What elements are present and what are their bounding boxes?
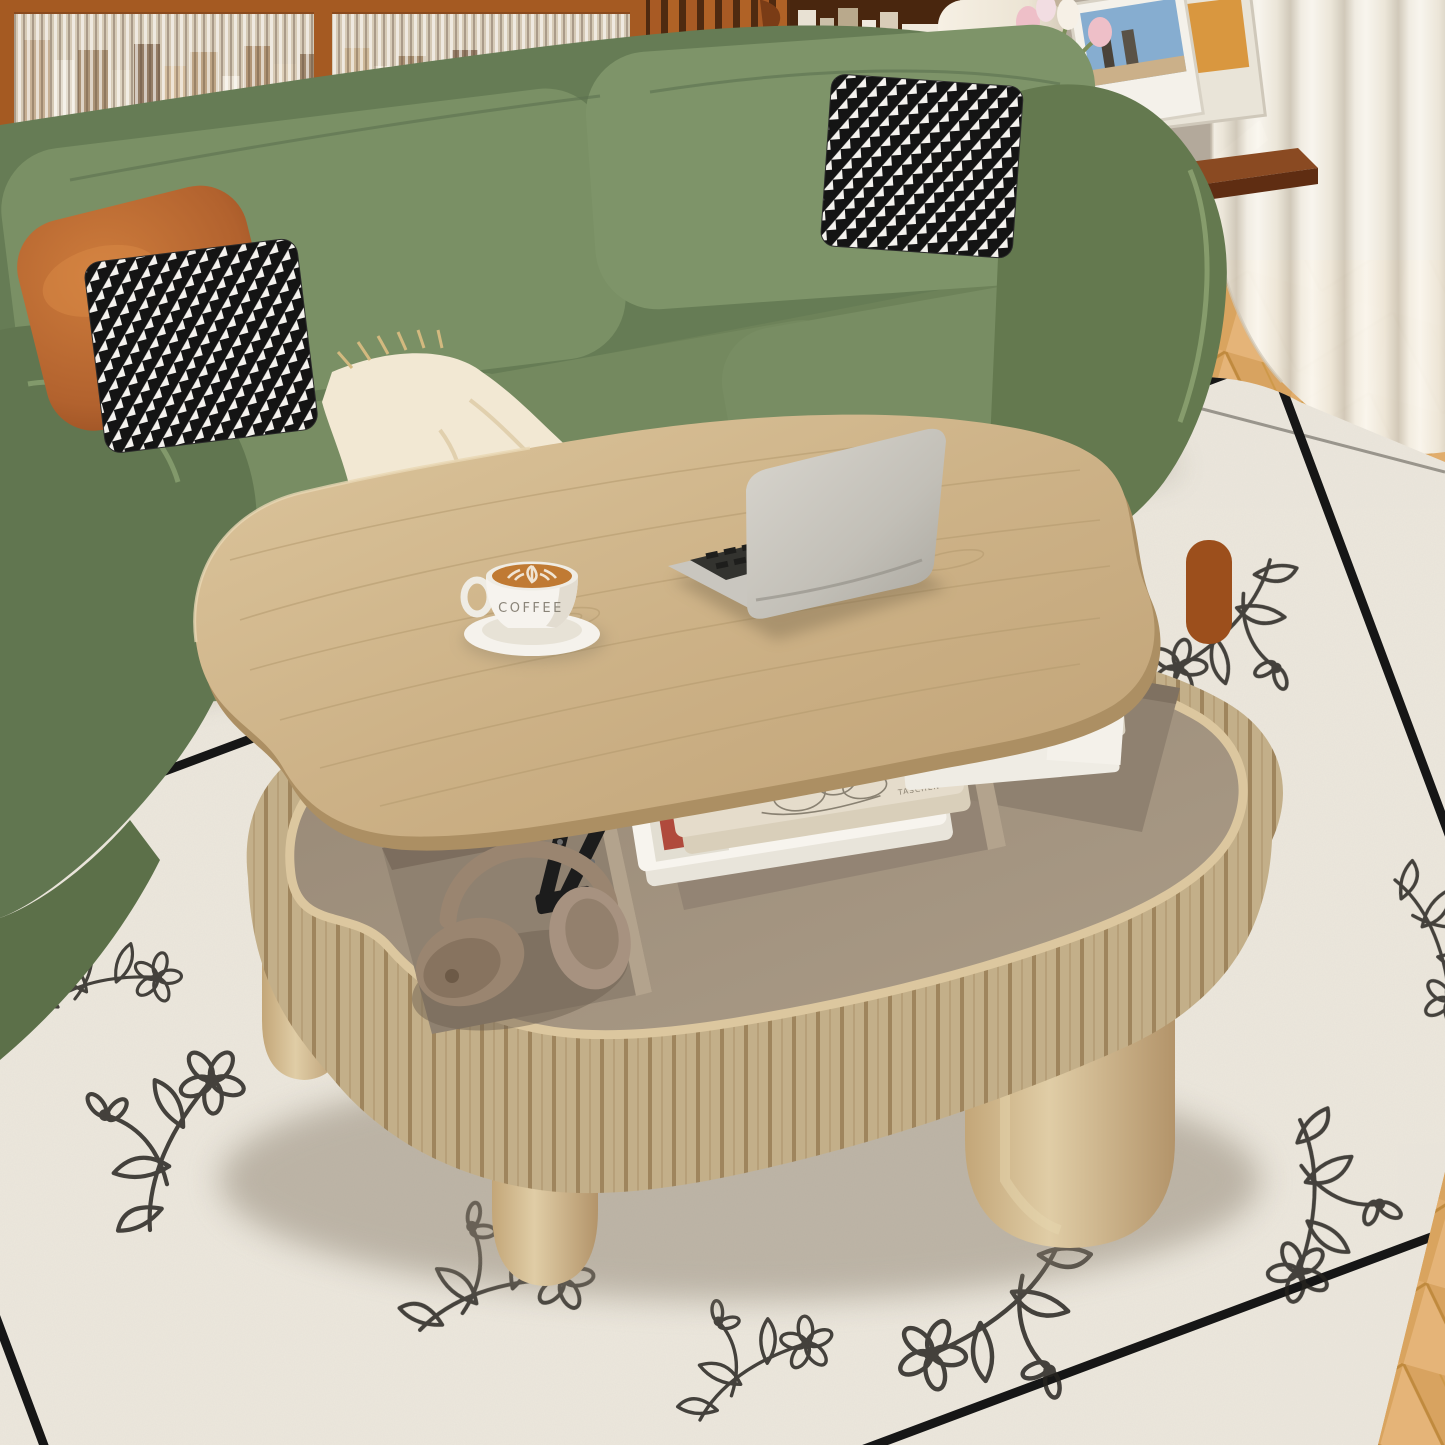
scene-canvas: K William Blake Dante's Divine Comedy TA… (0, 0, 1445, 1445)
lift-top-coffee-table: K William Blake Dante's Divine Comedy TA… (195, 415, 1283, 1300)
living-room-scene: K William Blake Dante's Divine Comedy TA… (0, 0, 1445, 1445)
mug-brand-text: COFFEE (498, 601, 564, 616)
houndstooth-pillow-left (83, 238, 319, 455)
houndstooth-pillow-right (820, 74, 1024, 259)
